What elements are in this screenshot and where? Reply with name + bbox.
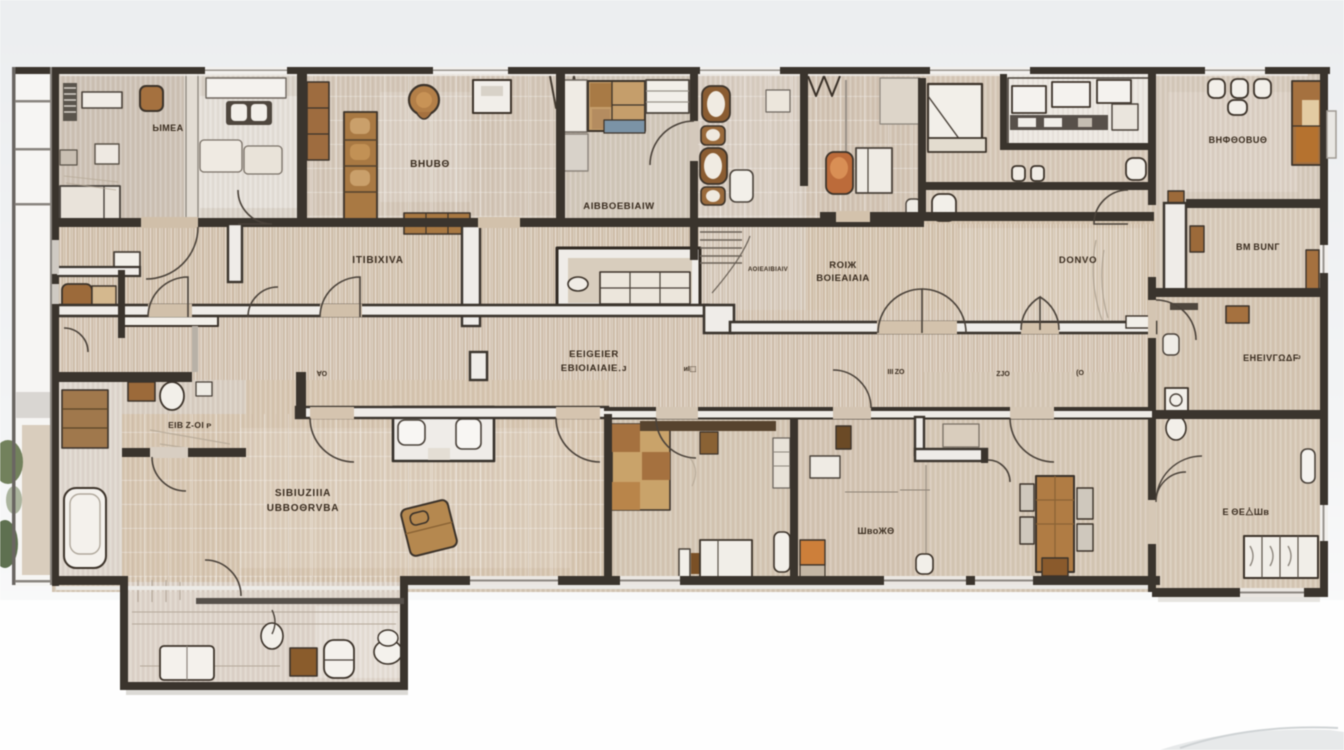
- svg-text:AOIEAIBIAIV: AOIEAIBIAIV: [748, 267, 788, 273]
- svg-text:EEIGEIER: EEIGEIER: [569, 349, 619, 360]
- svg-text:ЬIMEA: ЬIMEA: [153, 123, 184, 133]
- svg-text:UΒBOΘRVBA: UΒBOΘRVBA: [267, 503, 340, 514]
- svg-text:BHUBΘ: BHUBΘ: [410, 159, 450, 170]
- svg-text:BOIEAIAIA: BOIEAIAIA: [816, 273, 870, 284]
- svg-text:ITIBIXIVA: ITIBIXIVA: [352, 255, 403, 266]
- svg-text:EBIOIAIAIE․ᴊ: EBIOIAIAIE․ᴊ: [561, 363, 627, 374]
- svg-text:ᴎI⬚: ᴎI⬚: [684, 366, 697, 373]
- svg-text:ΖJO: ΖJO: [996, 371, 1010, 378]
- svg-text:SIBIUΖIIIA: SIBIUΖIIIA: [275, 488, 331, 499]
- svg-text:III ΖO: III ΖO: [888, 369, 906, 376]
- svg-text:ROIЖ: ROIЖ: [829, 260, 856, 271]
- svg-text:BM BUNГ: BM BUNГ: [1236, 242, 1280, 252]
- svg-text:AIBBOEBIAIW: AIBBOEBIAIW: [583, 201, 655, 212]
- svg-text:ШвоЖΘ: ШвоЖΘ: [857, 526, 894, 536]
- svg-text:․ᴊ: ․ᴊ: [1295, 354, 1300, 361]
- svg-text:ⱯO: ⱯO: [316, 370, 328, 378]
- svg-text:Е ΘЕ⧊Шв: Е ΘЕ⧊Шв: [1223, 506, 1270, 517]
- svg-text:EIB Ζ-OI ᴘ: EIB Ζ-OI ᴘ: [168, 420, 212, 430]
- svg-text:BHФΘOBUΘ: BHФΘOBUΘ: [1209, 135, 1268, 145]
- svg-text:DONVO: DONVO: [1059, 255, 1097, 266]
- svg-text:ЕHEIVГΩΔF: ЕHEIVГΩΔF: [1243, 353, 1299, 363]
- svg-text:(O: (O: [1076, 370, 1084, 377]
